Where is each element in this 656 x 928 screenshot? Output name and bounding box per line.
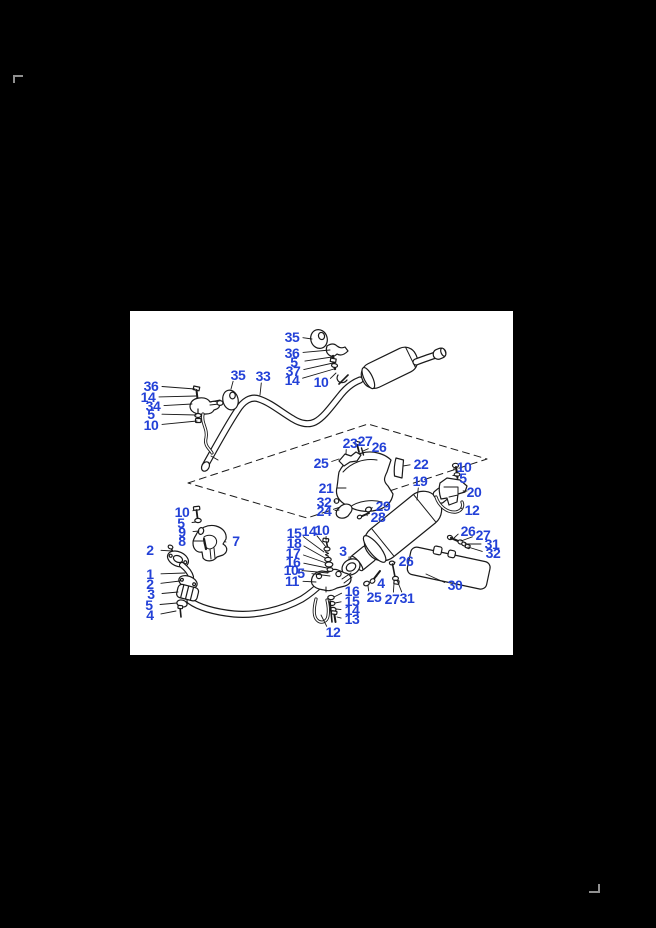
leader-line	[159, 396, 196, 397]
crop-mark-bottom-right	[589, 884, 600, 893]
callout-label-10: 10	[144, 418, 159, 432]
callout-label-27: 27	[358, 434, 373, 448]
callout-label-22: 22	[414, 457, 429, 471]
callout-label-4: 4	[146, 608, 153, 622]
callout-label-27: 27	[385, 592, 400, 606]
callout-label-11: 11	[285, 574, 299, 588]
leader-line	[162, 414, 196, 415]
strip-22	[394, 458, 403, 478]
leader-line	[162, 421, 197, 424]
diagram-panel: 3536537141035333614345102327262522105211…	[130, 311, 513, 655]
flange-bolt-stack-upper	[323, 538, 333, 571]
leader-line	[161, 573, 185, 574]
leader-line	[330, 373, 336, 378]
callout-label-14: 14	[285, 373, 300, 387]
leader-line	[162, 592, 178, 594]
callout-label-33: 33	[256, 369, 271, 383]
callout-label-10: 10	[315, 523, 330, 537]
callout-label-26: 26	[461, 524, 476, 538]
rear-muffler	[357, 343, 421, 392]
leader-line	[332, 459, 339, 462]
front-pipe	[190, 582, 323, 614]
callout-label-4: 4	[377, 576, 384, 590]
leader-line	[453, 475, 458, 476]
clamp-24	[336, 504, 352, 518]
callout-label-19: 19	[413, 474, 428, 488]
leader-line	[363, 449, 368, 451]
callout-label-13: 13	[345, 612, 360, 626]
crop-mark-top-left	[13, 75, 23, 83]
leader-line	[335, 602, 341, 603]
leader-line	[161, 611, 176, 614]
callout-label-5: 5	[459, 471, 466, 485]
page-background: { "page": { "background_color": "#000000…	[0, 0, 656, 928]
leader-line	[193, 531, 199, 532]
leader-line	[161, 550, 172, 551]
callout-label-31: 31	[400, 591, 415, 605]
callout-label-26: 26	[372, 440, 387, 454]
leader-line	[164, 404, 192, 406]
bolt-28	[357, 515, 362, 520]
leader-line	[162, 387, 195, 390]
leader-line	[461, 508, 462, 509]
bracket-7-assembly	[193, 506, 227, 561]
leader-line	[468, 547, 482, 551]
callout-label-2: 2	[146, 543, 153, 557]
dashed-reference-plane	[188, 424, 487, 518]
leader-line	[335, 510, 339, 511]
callout-label-35: 35	[285, 330, 300, 344]
leader-line	[454, 534, 458, 538]
leader-line	[304, 563, 327, 568]
leader-line	[403, 465, 410, 466]
callout-label-21: 21	[319, 481, 334, 495]
callout-label-12: 12	[326, 625, 341, 639]
callout-label-30: 30	[448, 578, 463, 592]
leader-line	[337, 617, 341, 618]
leader-line	[160, 603, 177, 605]
callout-label-35: 35	[231, 368, 246, 382]
callout-label-26: 26	[399, 554, 414, 568]
leader-line	[304, 363, 333, 370]
callout-label-12: 12	[465, 503, 480, 517]
callout-label-23: 23	[343, 436, 358, 450]
leader-line	[334, 593, 342, 597]
callout-label-24: 24	[317, 504, 332, 518]
tailpipe	[416, 347, 447, 362]
callout-label-3: 3	[339, 544, 346, 558]
callout-label-7: 7	[232, 534, 239, 548]
callout-label-10: 10	[314, 375, 329, 389]
callout-label-25: 25	[314, 456, 329, 470]
callout-label-25: 25	[367, 590, 382, 604]
leader-line	[260, 383, 261, 395]
callout-label-28: 28	[371, 510, 386, 524]
leader-line	[336, 609, 341, 610]
leader-line	[161, 581, 180, 583]
callout-label-20: 20	[467, 485, 482, 499]
leader-line	[192, 522, 196, 523]
callout-label-32: 32	[486, 546, 501, 560]
callout-label-8: 8	[178, 534, 185, 548]
leader-line	[305, 357, 332, 361]
